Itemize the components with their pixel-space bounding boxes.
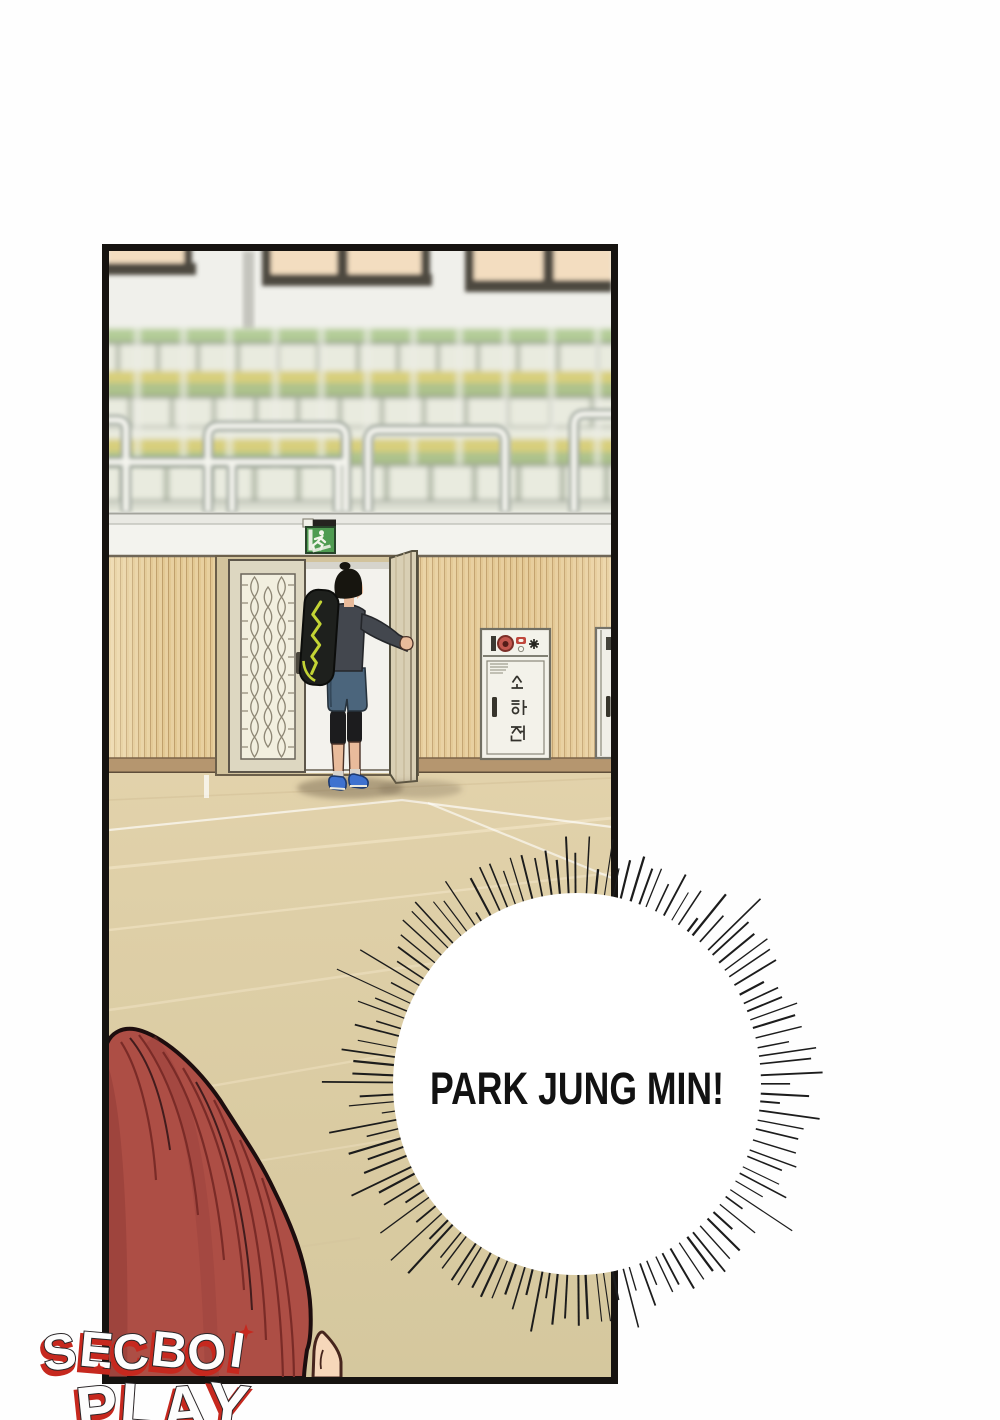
- svg-text:PARK JUNG MIN!: PARK JUNG MIN!: [430, 1063, 724, 1114]
- svg-text:A: A: [159, 1372, 210, 1420]
- svg-text:P: P: [73, 1372, 121, 1420]
- svg-text:Y: Y: [203, 1370, 252, 1420]
- svg-text:E: E: [77, 1321, 115, 1380]
- svg-text:B: B: [149, 1320, 191, 1379]
- svg-text:L: L: [118, 1371, 161, 1420]
